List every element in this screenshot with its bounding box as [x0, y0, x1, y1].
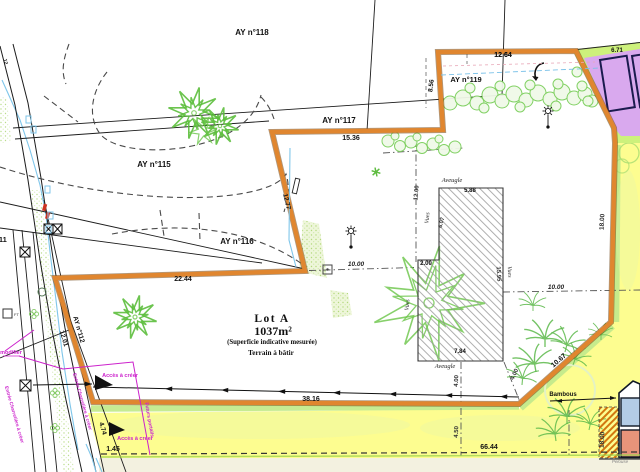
svg-text:Vues: Vues	[425, 211, 432, 223]
svg-text:6.71: 6.71	[611, 48, 623, 54]
svg-text:Accès à créer: Accès à créer	[102, 373, 139, 379]
svg-text:10.00: 10.00	[548, 284, 565, 291]
svg-text:1037m²: 1037m²	[254, 324, 292, 338]
svg-text:Pelouse: Pelouse	[612, 459, 629, 464]
svg-text:15.95: 15.95	[495, 266, 502, 282]
svg-text:66.44: 66.44	[480, 444, 498, 451]
svg-text:Vues: Vues	[506, 266, 513, 278]
svg-text:5.88: 5.88	[464, 188, 476, 194]
svg-text:111: 111	[0, 235, 7, 244]
svg-text:modifier: modifier	[0, 350, 23, 356]
svg-text:AY n°116: AY n°116	[220, 237, 254, 246]
svg-text:Vues: Vues	[405, 298, 412, 310]
svg-text:AY n°118: AY n°118	[235, 28, 269, 37]
svg-text:2.00: 2.00	[420, 261, 432, 267]
svg-text:AY n°119: AY n°119	[450, 75, 481, 84]
svg-text:FT: FT	[14, 312, 19, 317]
svg-text:(Superficie indicative mesurée: (Superficie indicative mesurée)	[227, 339, 317, 346]
svg-text:1.45: 1.45	[106, 446, 120, 453]
svg-text:10.00: 10.00	[348, 261, 365, 268]
svg-text:18.00: 18.00	[599, 213, 607, 230]
svg-text:12.64: 12.64	[494, 52, 512, 59]
svg-text:4.00: 4.00	[454, 374, 461, 387]
svg-text:Terrain à bâtir: Terrain à bâtir	[248, 349, 294, 357]
svg-text:15.36: 15.36	[342, 135, 360, 142]
svg-text:AY n°115: AY n°115	[137, 160, 171, 169]
svg-text:7.84: 7.84	[454, 349, 466, 355]
svg-text:Bambous: Bambous	[549, 392, 577, 398]
svg-text:22.44: 22.44	[174, 276, 192, 283]
svg-text:4.50: 4.50	[454, 425, 461, 438]
svg-text:Aveugle: Aveugle	[441, 177, 463, 184]
svg-text:AY n°117: AY n°117	[322, 116, 356, 125]
svg-text:Accès à créer: Accès à créer	[117, 436, 154, 442]
svg-text:18.00: 18.00	[599, 431, 607, 448]
svg-text:Aveugle: Aveugle	[434, 363, 456, 370]
svg-text:38.16: 38.16	[302, 396, 320, 403]
